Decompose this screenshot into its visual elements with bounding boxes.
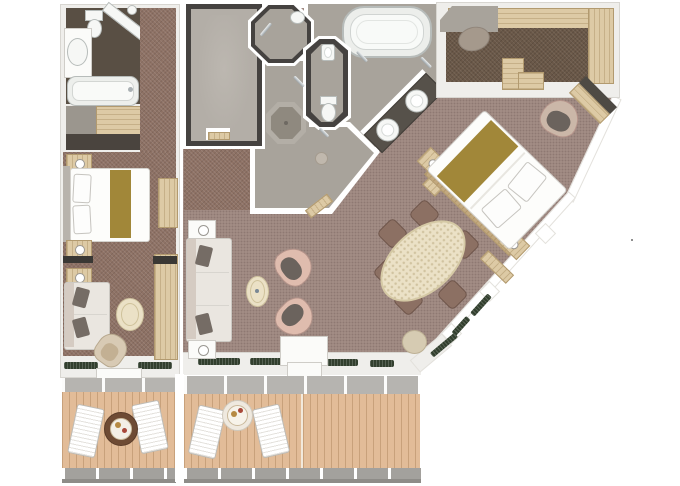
left-closet-wood xyxy=(96,106,142,136)
balcony-sill xyxy=(184,376,418,394)
left-corridor-carpet xyxy=(140,8,176,152)
bed-runner xyxy=(110,170,131,238)
tall-cabinet xyxy=(154,254,178,360)
end-table xyxy=(188,340,216,359)
window-planter xyxy=(138,362,172,369)
rail-cap xyxy=(184,479,421,483)
wc-basin xyxy=(321,44,335,61)
shower-head-icon xyxy=(127,5,137,15)
closet-shelves-right xyxy=(588,8,614,84)
shower-pan xyxy=(266,102,306,144)
coffee-table xyxy=(246,276,269,307)
left-rail-cap xyxy=(62,479,176,483)
drain-icon xyxy=(284,121,288,125)
window-planter xyxy=(198,358,240,365)
artifact-speck xyxy=(631,239,633,241)
left-wardrobe xyxy=(66,134,140,150)
floor-plan xyxy=(0,0,680,486)
toilet-room xyxy=(303,36,351,130)
left-closet-floor xyxy=(66,106,96,134)
left-deck-table xyxy=(104,412,138,446)
window-planter xyxy=(370,360,394,367)
side-table-left xyxy=(116,298,144,331)
dark-ledge xyxy=(63,256,93,263)
end-table xyxy=(188,220,216,239)
balcony-divider-wall xyxy=(175,374,184,482)
dressing-stool xyxy=(315,152,328,165)
dark-ledge xyxy=(153,256,177,264)
deck-table xyxy=(222,400,253,431)
bathtub-left xyxy=(67,76,139,106)
sink-icon xyxy=(67,38,88,66)
foyer-threshold xyxy=(208,132,230,140)
window-planter xyxy=(64,362,98,369)
pillow xyxy=(72,205,91,235)
deck-seam xyxy=(301,394,303,468)
pillow xyxy=(72,174,91,204)
wc-toilet-icon xyxy=(321,103,336,122)
left-balcony-sill xyxy=(62,378,176,392)
master-bathtub xyxy=(342,6,432,58)
closet-drawers xyxy=(518,72,544,90)
tub-faucet-icon xyxy=(128,87,133,92)
dresser xyxy=(158,178,178,228)
shower-head-icon xyxy=(290,11,305,24)
headboard-left xyxy=(63,166,70,242)
pouf xyxy=(402,330,427,354)
